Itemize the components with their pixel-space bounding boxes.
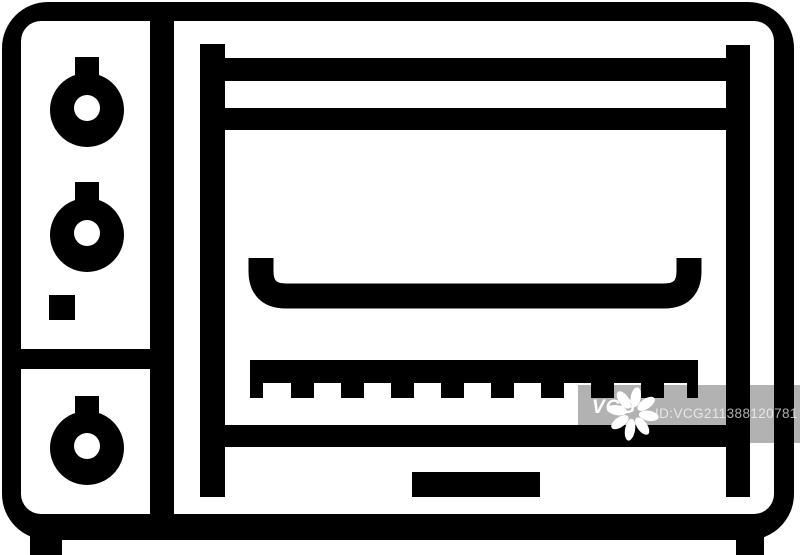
- watermark-id-text: ID:VCG211388120781: [655, 407, 798, 421]
- oven-icon-shapes: [2, 2, 794, 555]
- toaster-oven-icon: [0, 0, 800, 555]
- indicator-square: [49, 295, 75, 320]
- door-handle: [412, 472, 540, 497]
- heating-element-top: [225, 58, 726, 81]
- vcg-watermark: VCG ID:VCG211388120781: [578, 385, 800, 443]
- control-panel-divider: [150, 21, 174, 514]
- heating-element-bottom: [225, 108, 726, 130]
- stock-image-canvas: VCG ID:VCG211388120781: [0, 0, 800, 555]
- door-left-bar: [200, 44, 225, 497]
- control-panel-section-divider: [18, 349, 174, 369]
